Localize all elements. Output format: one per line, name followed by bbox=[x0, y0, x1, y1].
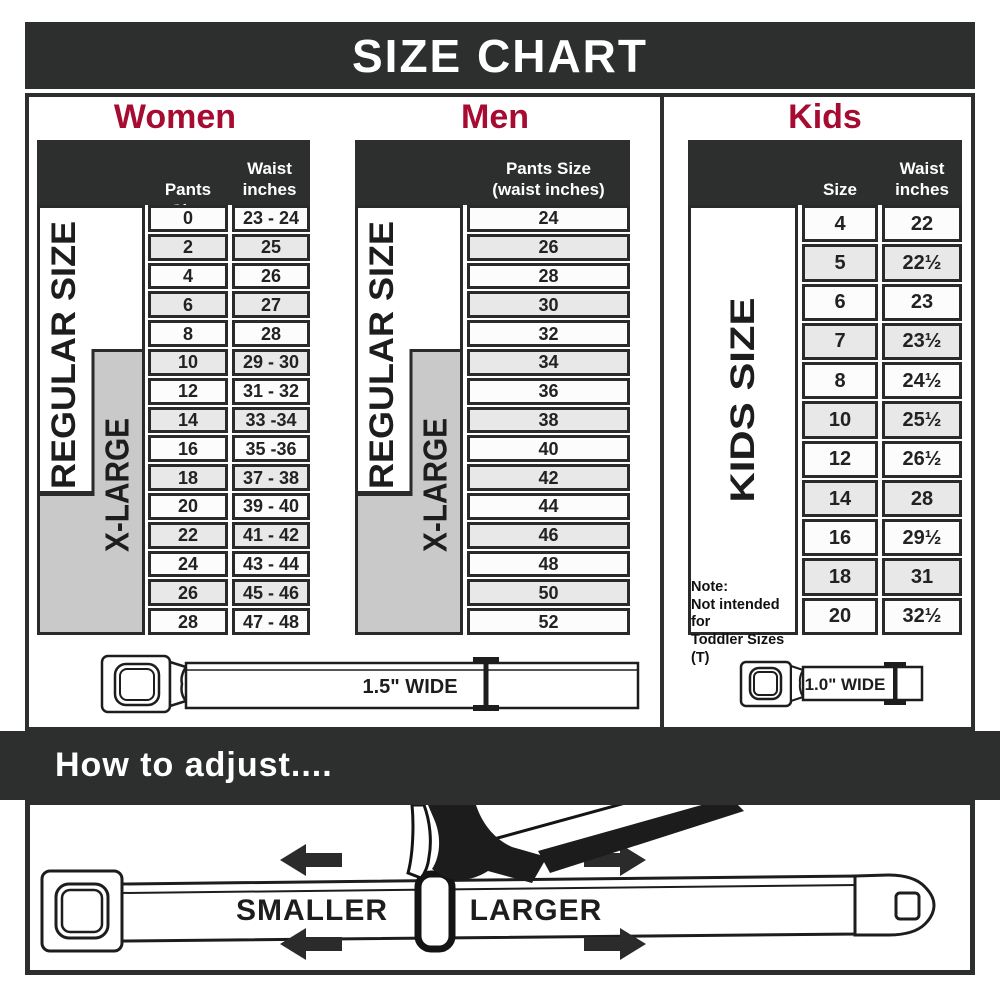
adult-belt-width-label: 1.5" WIDE bbox=[362, 676, 457, 698]
table-cell: 16 bbox=[802, 519, 878, 556]
table-cell: 26 bbox=[467, 234, 630, 261]
table-cell: 34 bbox=[467, 349, 630, 376]
women-size-zone: REGULAR SIZE X-LARGE bbox=[37, 205, 147, 635]
table-cell: 20 bbox=[802, 598, 878, 635]
table-cell: 23½ bbox=[882, 323, 962, 360]
women-table-rows: 023 - 242254266278281029 - 301231 - 3214… bbox=[148, 205, 310, 635]
table-row: 023 - 24 bbox=[148, 205, 310, 232]
table-row: 30 bbox=[467, 291, 630, 318]
table-cell: 12 bbox=[148, 378, 228, 405]
kids-size-label: KIDS SIZE bbox=[724, 298, 762, 503]
kids-heading: Kids bbox=[740, 98, 910, 138]
table-cell: 26 bbox=[148, 579, 228, 606]
table-row: 34 bbox=[467, 349, 630, 376]
men-heading: Men bbox=[410, 98, 580, 138]
kids-belt-width-label: 1.0" WIDE bbox=[805, 675, 886, 694]
size-chart-page: SIZE CHART Women Men Kids Pants Size Wai… bbox=[0, 0, 1000, 1000]
table-cell: 6 bbox=[802, 284, 878, 321]
table-row: 1635 -36 bbox=[148, 435, 310, 462]
adult-belt-illustration: 1.5" WIDE bbox=[90, 650, 645, 718]
table-cell: 20 bbox=[148, 493, 228, 520]
table-cell: 33 -34 bbox=[232, 407, 310, 434]
table-cell: 31 bbox=[882, 558, 962, 595]
table-row: 48 bbox=[467, 551, 630, 578]
table-cell: 28 bbox=[232, 320, 310, 347]
table-cell: 38 bbox=[467, 407, 630, 434]
men-size-zone: REGULAR SIZE X-LARGE bbox=[355, 205, 465, 635]
table-cell: 4 bbox=[802, 205, 878, 242]
table-row: 32 bbox=[467, 320, 630, 347]
men-xlarge-label: X-LARGE bbox=[417, 418, 454, 552]
table-cell: 26½ bbox=[882, 441, 962, 478]
table-cell: 10 bbox=[148, 349, 228, 376]
table-row: 1629½ bbox=[802, 519, 962, 556]
table-row: 522½ bbox=[802, 244, 962, 281]
table-row: 1837 - 38 bbox=[148, 464, 310, 491]
table-row: 2645 - 46 bbox=[148, 579, 310, 606]
table-row: 46 bbox=[467, 522, 630, 549]
women-heading: Women bbox=[90, 98, 260, 138]
table-row: 28 bbox=[467, 263, 630, 290]
larger-label: LARGER bbox=[470, 894, 603, 927]
table-cell: 28 bbox=[148, 608, 228, 635]
table-cell: 6 bbox=[148, 291, 228, 318]
table-row: 2039 - 40 bbox=[148, 493, 310, 520]
table-cell: 25½ bbox=[882, 401, 962, 438]
women-xlarge-label: X-LARGE bbox=[99, 418, 136, 552]
table-cell: 22 bbox=[882, 205, 962, 242]
women-regular-label: REGULAR SIZE bbox=[45, 221, 83, 489]
kids-belt-illustration: 1.0" WIDE bbox=[735, 658, 930, 710]
table-cell: 44 bbox=[467, 493, 630, 520]
table-cell: 28 bbox=[882, 480, 962, 517]
table-cell: 23 bbox=[882, 284, 962, 321]
table-row: 828 bbox=[148, 320, 310, 347]
table-row: 1433 -34 bbox=[148, 407, 310, 434]
table-row: 1226½ bbox=[802, 441, 962, 478]
table-row: 38 bbox=[467, 407, 630, 434]
kids-col-waist-label: Waist inches bbox=[882, 158, 962, 201]
table-cell: 2 bbox=[148, 234, 228, 261]
table-cell: 46 bbox=[467, 522, 630, 549]
table-row: 1029 - 30 bbox=[148, 349, 310, 376]
kids-size-zone: KIDS SIZE bbox=[688, 205, 798, 635]
table-cell: 8 bbox=[148, 320, 228, 347]
table-cell: 37 - 38 bbox=[232, 464, 310, 491]
table-cell: 10 bbox=[802, 401, 878, 438]
table-cell: 22 bbox=[148, 522, 228, 549]
table-row: 824½ bbox=[802, 362, 962, 399]
table-cell: 27 bbox=[232, 291, 310, 318]
table-row: 1831 bbox=[802, 558, 962, 595]
men-regular-label: REGULAR SIZE bbox=[363, 221, 401, 489]
table-row: 26 bbox=[467, 234, 630, 261]
table-cell: 35 -36 bbox=[232, 435, 310, 462]
table-row: 50 bbox=[467, 579, 630, 606]
table-row: 1025½ bbox=[802, 401, 962, 438]
table-cell: 28 bbox=[467, 263, 630, 290]
table-row: 2032½ bbox=[802, 598, 962, 635]
table-cell: 31 - 32 bbox=[232, 378, 310, 405]
table-cell: 24 bbox=[148, 551, 228, 578]
table-cell: 23 - 24 bbox=[232, 205, 310, 232]
table-row: 426 bbox=[148, 263, 310, 290]
table-cell: 0 bbox=[148, 205, 228, 232]
table-cell: 24½ bbox=[882, 362, 962, 399]
table-row: 42 bbox=[467, 464, 630, 491]
page-title: SIZE CHART bbox=[352, 29, 648, 83]
table-cell: 47 - 48 bbox=[232, 608, 310, 635]
table-cell: 12 bbox=[802, 441, 878, 478]
table-row: 1428 bbox=[802, 480, 962, 517]
table-row: 723½ bbox=[802, 323, 962, 360]
kids-note: Note: Not intended for Toddler Sizes (T) bbox=[691, 579, 801, 667]
table-row: 225 bbox=[148, 234, 310, 261]
table-cell: 14 bbox=[148, 407, 228, 434]
table-row: 24 bbox=[467, 205, 630, 232]
table-cell: 36 bbox=[467, 378, 630, 405]
table-cell: 7 bbox=[802, 323, 878, 360]
hand-icon bbox=[408, 805, 744, 883]
table-cell: 22½ bbox=[882, 244, 962, 281]
table-row: 36 bbox=[467, 378, 630, 405]
women-col-waist-label: Waist inches bbox=[229, 158, 310, 201]
table-row: 40 bbox=[467, 435, 630, 462]
table-row: 422 bbox=[802, 205, 962, 242]
adjust-banner: How to adjust.... bbox=[0, 731, 1000, 800]
table-row: 2443 - 44 bbox=[148, 551, 310, 578]
adjust-illustration: SMALLER LARGER bbox=[30, 805, 970, 970]
table-cell: 24 bbox=[467, 205, 630, 232]
table-cell: 43 - 44 bbox=[232, 551, 310, 578]
table-cell: 30 bbox=[467, 291, 630, 318]
table-cell: 40 bbox=[467, 435, 630, 462]
table-cell: 26 bbox=[232, 263, 310, 290]
table-cell: 32 bbox=[467, 320, 630, 347]
table-cell: 45 - 46 bbox=[232, 579, 310, 606]
table-row: 623 bbox=[802, 284, 962, 321]
table-row: 627 bbox=[148, 291, 310, 318]
table-cell: 39 - 40 bbox=[232, 493, 310, 520]
table-cell: 16 bbox=[148, 435, 228, 462]
kids-section-divider bbox=[660, 93, 664, 731]
table-cell: 29 - 30 bbox=[232, 349, 310, 376]
table-row: 52 bbox=[467, 608, 630, 635]
table-cell: 41 - 42 bbox=[232, 522, 310, 549]
men-col-label: Pants Size (waist inches) bbox=[467, 158, 630, 201]
table-cell: 25 bbox=[232, 234, 310, 261]
table-cell: 18 bbox=[148, 464, 228, 491]
table-cell: 52 bbox=[467, 608, 630, 635]
kids-table-rows: 422522½623723½824½1025½1226½14281629½183… bbox=[802, 205, 962, 635]
kids-col-size-label: Size bbox=[802, 179, 878, 200]
table-cell: 29½ bbox=[882, 519, 962, 556]
table-cell: 50 bbox=[467, 579, 630, 606]
table-cell: 8 bbox=[802, 362, 878, 399]
table-cell: 32½ bbox=[882, 598, 962, 635]
table-cell: 14 bbox=[802, 480, 878, 517]
adjust-heading: How to adjust.... bbox=[55, 746, 333, 785]
table-cell: 42 bbox=[467, 464, 630, 491]
table-row: 44 bbox=[467, 493, 630, 520]
belt-adjuster-clip bbox=[418, 874, 452, 949]
smaller-label: SMALLER bbox=[236, 894, 388, 927]
table-row: 2847 - 48 bbox=[148, 608, 310, 635]
table-cell: 5 bbox=[802, 244, 878, 281]
table-cell: 4 bbox=[148, 263, 228, 290]
table-cell: 18 bbox=[802, 558, 878, 595]
table-row: 2241 - 42 bbox=[148, 522, 310, 549]
table-cell: 48 bbox=[467, 551, 630, 578]
title-banner: SIZE CHART bbox=[25, 22, 975, 89]
men-table-rows: 242628303234363840424446485052 bbox=[467, 205, 630, 635]
table-row: 1231 - 32 bbox=[148, 378, 310, 405]
